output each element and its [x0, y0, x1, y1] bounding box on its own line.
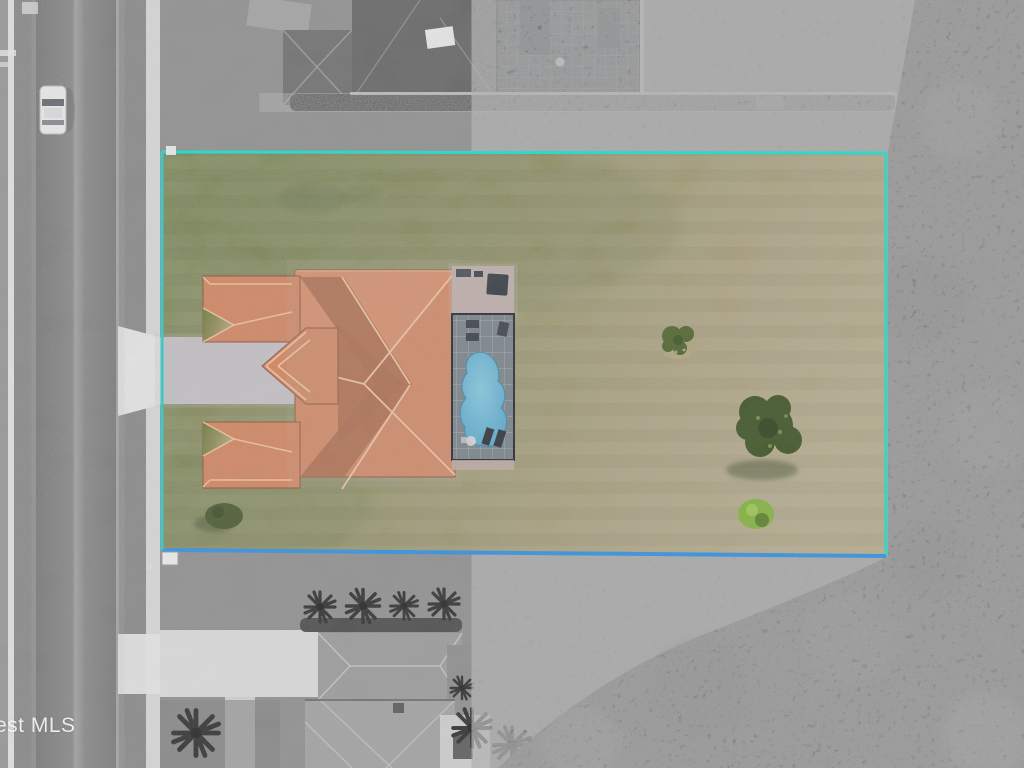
aerial-photo: est MLS	[0, 0, 1024, 768]
mls-watermark: est MLS	[0, 714, 76, 738]
photo-blotch-overlay	[0, 0, 1024, 768]
aerial-scene	[0, 0, 1024, 768]
